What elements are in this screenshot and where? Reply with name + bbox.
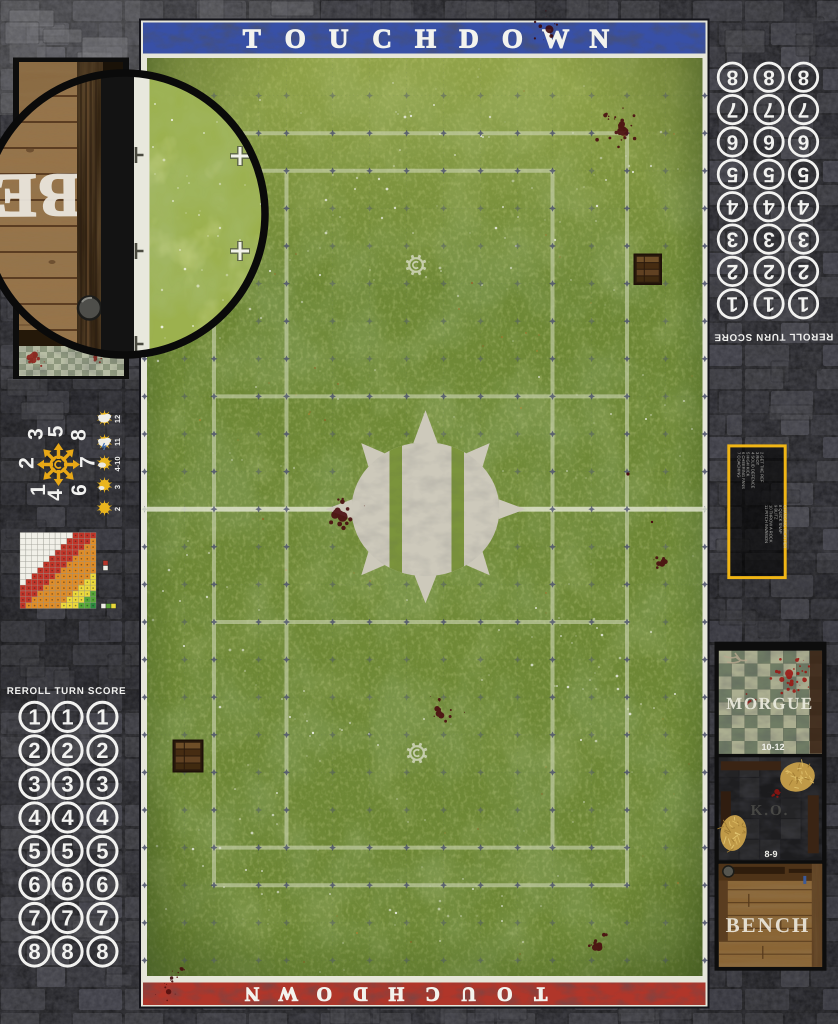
svg-text:T: T — [533, 983, 547, 1005]
svg-text:12: 12 — [113, 415, 122, 423]
svg-text:6: 6 — [68, 484, 91, 496]
svg-text:5: 5 — [61, 839, 73, 864]
svg-text:W: W — [278, 983, 298, 1005]
svg-text:11: 11 — [113, 438, 122, 446]
svg-text:5: 5 — [28, 839, 40, 864]
svg-text:4: 4 — [28, 805, 41, 830]
svg-text:4: 4 — [96, 805, 109, 830]
svg-text:4: 4 — [726, 195, 738, 218]
svg-text:2: 2 — [763, 260, 775, 283]
svg-text:2: 2 — [726, 260, 738, 283]
svg-text:H: H — [388, 983, 404, 1005]
svg-text:4: 4 — [763, 195, 775, 218]
svg-text:3: 3 — [28, 771, 40, 796]
svg-text:6: 6 — [763, 130, 775, 153]
svg-text:3: 3 — [61, 771, 73, 796]
svg-text:7: 7 — [77, 456, 100, 468]
svg-text:N: N — [589, 23, 609, 53]
svg-text:4: 4 — [44, 489, 67, 501]
svg-text:5: 5 — [797, 163, 809, 186]
svg-text:H: H — [415, 23, 436, 53]
svg-text:6: 6 — [726, 130, 738, 153]
svg-text:O: O — [502, 23, 523, 53]
svg-text:7: 7 — [726, 98, 738, 121]
svg-text:2: 2 — [798, 260, 810, 283]
svg-text:8: 8 — [763, 66, 775, 89]
svg-text:8-9: 8-9 — [764, 849, 777, 859]
svg-text:3: 3 — [763, 228, 775, 251]
svg-text:8: 8 — [726, 66, 738, 89]
svg-text:8: 8 — [68, 429, 91, 441]
svg-text:U: U — [461, 983, 476, 1005]
svg-text:3: 3 — [96, 771, 108, 796]
svg-text:5: 5 — [726, 163, 738, 186]
svg-text:3: 3 — [798, 228, 810, 251]
svg-text:4-10: 4-10 — [113, 456, 122, 471]
svg-text:3: 3 — [726, 228, 738, 251]
svg-text:6: 6 — [798, 130, 810, 153]
svg-text:2: 2 — [16, 457, 39, 469]
svg-text:REROLL TURN SCORE: REROLL TURN SCORE — [7, 686, 127, 697]
svg-text:1: 1 — [726, 292, 738, 315]
svg-text:8: 8 — [61, 939, 73, 964]
svg-text:MORGUE: MORGUE — [726, 694, 813, 713]
svg-text:1: 1 — [61, 704, 73, 729]
svg-text:2: 2 — [28, 738, 40, 763]
svg-text:10-12: 10-12 — [761, 742, 784, 752]
svg-text:T: T — [243, 23, 261, 53]
svg-text:7: 7 — [798, 98, 810, 121]
svg-text:8: 8 — [96, 939, 108, 964]
svg-text:BE: BE — [0, 161, 81, 230]
svg-text:O: O — [285, 23, 306, 53]
svg-text:4: 4 — [797, 195, 809, 218]
svg-text:7: 7 — [763, 98, 775, 121]
svg-text:D: D — [459, 23, 479, 53]
svg-text:3: 3 — [113, 485, 122, 489]
svg-text:BENCH: BENCH — [726, 913, 811, 937]
svg-text:K.O.: K.O. — [751, 803, 790, 819]
svg-text:7: 7 — [96, 906, 108, 931]
svg-text:O: O — [497, 983, 513, 1005]
svg-text:C: C — [425, 983, 440, 1005]
svg-text:8: 8 — [797, 66, 809, 89]
svg-text:C: C — [372, 23, 392, 53]
svg-text:REROLL TURN SCORE: REROLL TURN SCORE — [714, 331, 834, 343]
svg-text:8: 8 — [28, 939, 40, 964]
svg-text:5: 5 — [763, 163, 775, 186]
svg-text:7 COACHING: 7 COACHING — [737, 452, 742, 477]
svg-text:4: 4 — [61, 805, 74, 830]
svg-text:2: 2 — [113, 507, 122, 511]
svg-text:5: 5 — [45, 425, 68, 437]
svg-text:U: U — [329, 23, 349, 53]
svg-text:1: 1 — [797, 292, 809, 315]
svg-text:7: 7 — [61, 906, 73, 931]
svg-text:O: O — [316, 983, 332, 1005]
svg-text:1: 1 — [28, 704, 40, 729]
svg-text:2: 2 — [96, 738, 108, 763]
svg-text:6: 6 — [96, 872, 108, 897]
svg-text:2: 2 — [61, 738, 73, 763]
svg-text:11 PITCH INVASION: 11 PITCH INVASION — [764, 505, 769, 543]
svg-text:N: N — [244, 983, 259, 1005]
svg-text:D: D — [353, 983, 368, 1005]
svg-text:6: 6 — [28, 872, 40, 897]
svg-text:1: 1 — [763, 292, 775, 315]
svg-text:5: 5 — [96, 839, 108, 864]
svg-text:7: 7 — [28, 906, 40, 931]
svg-text:6: 6 — [61, 872, 73, 897]
svg-text:1: 1 — [96, 704, 108, 729]
